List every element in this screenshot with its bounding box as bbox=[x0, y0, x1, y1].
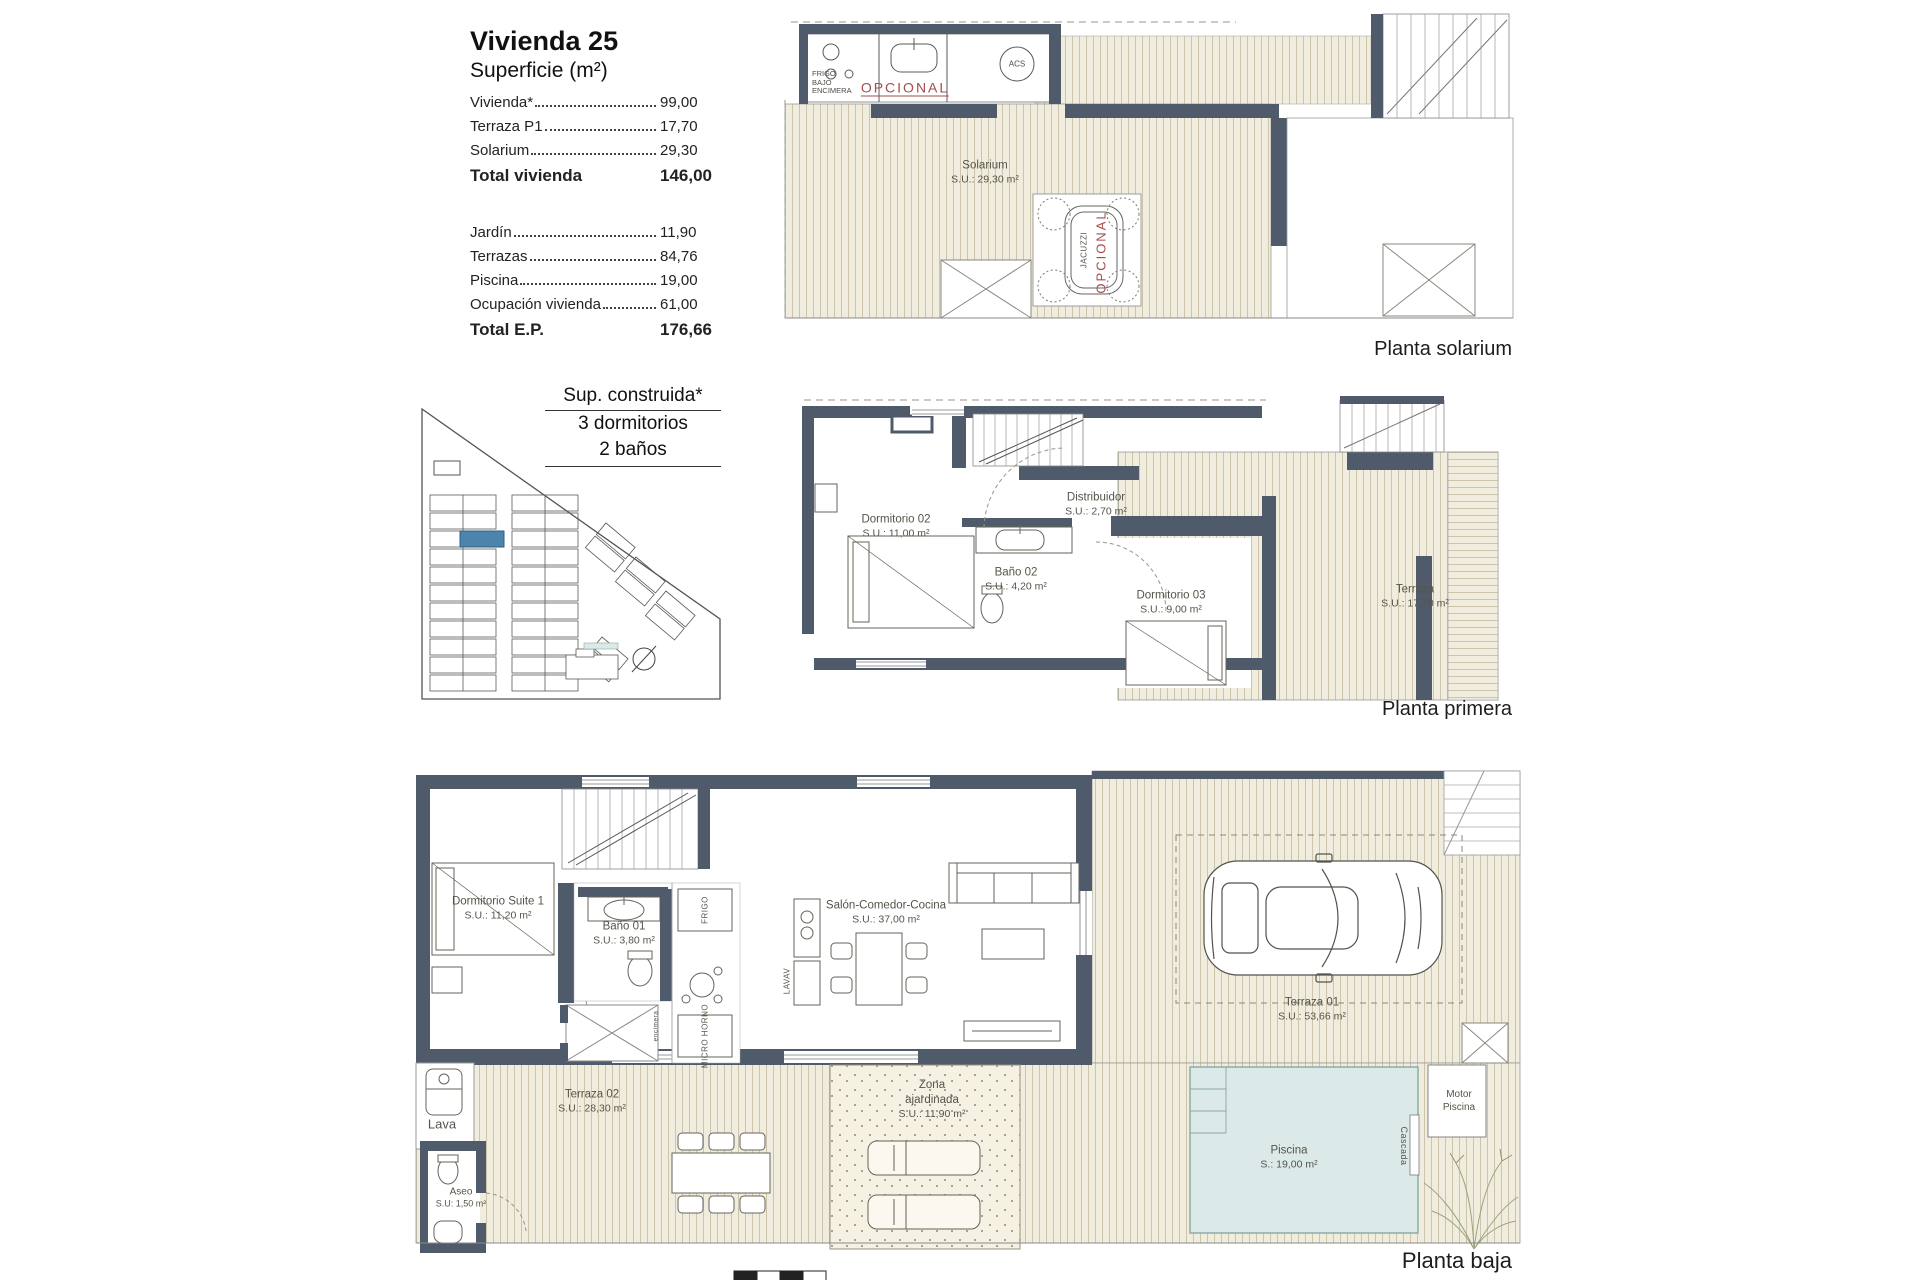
table-row: Vivienda*99,00 bbox=[470, 94, 722, 118]
page-title: Vivienda 25 bbox=[470, 26, 722, 56]
room-label-terraza-p1: TerrazaS.U.: 17,70 m² bbox=[1381, 583, 1449, 612]
understair-closet bbox=[560, 1005, 658, 1061]
room-label-terraza02: Terraza 02S.U.: 28,30 m² bbox=[558, 1088, 626, 1117]
stairs-upper bbox=[1340, 396, 1444, 452]
summary-panel: Vivienda 25 Superficie (m²) Vivienda*99,… bbox=[470, 26, 722, 350]
coffee-table bbox=[982, 929, 1044, 959]
room-label-dormitorio02: Dormitorio 02S.U.: 11,00 m² bbox=[861, 513, 930, 542]
highlighted-unit bbox=[460, 531, 504, 547]
cascada-label: Cascada bbox=[1399, 1126, 1409, 1165]
room-label-suite: Dormitorio Suite 1S.U.: 11,20 m² bbox=[452, 895, 544, 924]
page-subtitle: Superficie (m²) bbox=[470, 58, 722, 84]
car bbox=[1204, 854, 1442, 982]
scale-bar bbox=[734, 1271, 826, 1280]
plan-solarium bbox=[771, 14, 1520, 350]
lavav-label: LAVAV bbox=[783, 968, 792, 995]
site-entry bbox=[434, 461, 460, 475]
encimera-label: encimera bbox=[653, 1011, 660, 1042]
wall bbox=[1271, 118, 1287, 246]
bed-dorm03 bbox=[1126, 621, 1226, 685]
plan-baja bbox=[416, 771, 1520, 1280]
frigo-label: FRIGO bbox=[701, 896, 710, 924]
jacuzzi-opcional-label: OPCIONAL bbox=[1094, 210, 1109, 293]
opcional-label: OPCIONAL bbox=[861, 80, 949, 97]
table-row: Piscina19,00 bbox=[470, 272, 722, 296]
floorplan-sheet: Vivienda 25 Superficie (m²) Vivienda*99,… bbox=[0, 0, 1920, 1280]
room-label-distribuidor: DistribuidorS.U.: 2,70 m² bbox=[1065, 491, 1127, 520]
frigo-note: FRIGOBAJOENCIMERA bbox=[812, 70, 852, 96]
pergola bbox=[1444, 771, 1520, 855]
solarium-upper-deck bbox=[1035, 36, 1371, 104]
kitchen-island bbox=[794, 899, 820, 1005]
table-row: Solarium29,30 bbox=[470, 142, 722, 166]
caption-planta-solarium: Planta solarium bbox=[1272, 338, 1512, 361]
room-label-salon: Salón-Comedor-CocinaS.U.: 37,00 m² bbox=[826, 899, 946, 928]
jacuzzi-label: JACUZZI bbox=[1080, 232, 1089, 268]
stairs bbox=[1371, 14, 1509, 118]
micro-horno-label: MICRO HORNO bbox=[701, 1004, 710, 1068]
lava-room bbox=[416, 1063, 474, 1149]
skylight bbox=[1462, 1023, 1508, 1063]
site-pool bbox=[584, 643, 618, 649]
wall bbox=[871, 104, 997, 118]
wall bbox=[1065, 104, 1279, 118]
table-row: Terraza P117,70 bbox=[470, 118, 722, 142]
tv-bench bbox=[964, 1021, 1060, 1041]
sofa bbox=[949, 863, 1079, 903]
caption-planta-primera: Planta primera bbox=[1272, 698, 1512, 721]
room-label-dormitorio03: Dormitorio 03S.U.: 9,00 m² bbox=[1136, 589, 1205, 618]
lava-label: Lava bbox=[428, 1117, 456, 1134]
window-notch bbox=[892, 416, 932, 432]
stairs bbox=[562, 789, 710, 869]
skylight bbox=[941, 260, 1031, 318]
wall bbox=[558, 883, 574, 1003]
motor-piscina-label: Motor Piscina bbox=[1433, 1088, 1485, 1114]
table-row: Terrazas84,76 bbox=[470, 248, 722, 272]
site-plan bbox=[416, 405, 726, 705]
outdoor-table bbox=[672, 1133, 770, 1213]
room-label-piscina: PiscinaS.: 19,00 m² bbox=[1260, 1144, 1317, 1173]
room-label-terraza01: Terraza 01S.U.: 53,66 m² bbox=[1278, 996, 1346, 1025]
room-label-zona: Zona ajardinadaS.U.: 11,90 m² bbox=[892, 1078, 972, 1122]
room-label-bano01: Baño 01S.U.: 3,80 m² bbox=[593, 920, 655, 949]
table-total-row: Total E.P.176,66 bbox=[470, 320, 722, 350]
side-walkway bbox=[1448, 452, 1498, 700]
table-total-row: Total vivienda146,00 bbox=[470, 166, 722, 196]
wall bbox=[1092, 771, 1444, 779]
room-label-aseo: AseoS.U: 1,50 m² bbox=[436, 1186, 487, 1211]
room-label-solarium: SolariumS.U.: 29,30 m² bbox=[951, 159, 1019, 188]
table-row: Jardín11,90 bbox=[470, 224, 722, 248]
caption-planta-baja: Planta baja bbox=[1272, 1248, 1512, 1274]
plan-primera bbox=[796, 396, 1520, 722]
room-label-bano02: Baño 02S.U.: 4,20 m² bbox=[985, 566, 1047, 595]
table-row: Ocupación vivienda61,00 bbox=[470, 296, 722, 320]
stairs bbox=[973, 414, 1083, 466]
acs-label: ACS bbox=[1009, 60, 1025, 69]
skylight bbox=[1383, 244, 1475, 316]
